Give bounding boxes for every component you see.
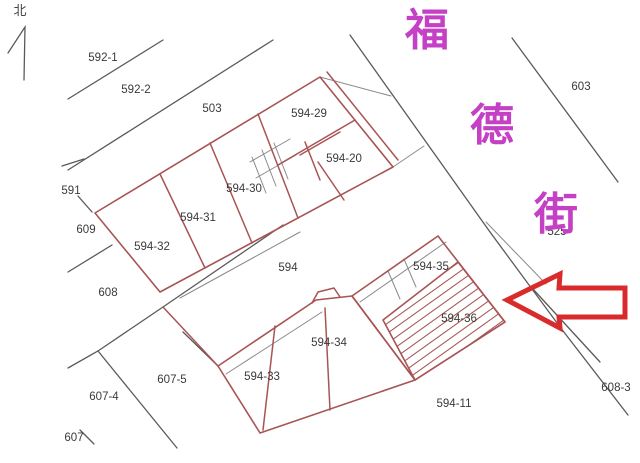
parcel-label-594-33: 594-33	[244, 371, 280, 383]
parcel-label-594-34: 594-34	[311, 337, 347, 349]
parcel-label-609: 609	[76, 224, 95, 236]
north-label: 北	[13, 3, 26, 18]
parcel-label-607-5: 607-5	[157, 374, 186, 386]
parcel-label-594-35: 594-35	[413, 261, 449, 273]
parcel-label-608-3: 608-3	[601, 382, 630, 394]
parcel-labels: 592-1 592-2 503 603 594-29 594-20 594-30…	[61, 52, 630, 444]
highlight-arrow-icon	[507, 274, 625, 328]
parcel-label-594-32: 594-32	[134, 241, 170, 253]
parcel-label-503: 503	[202, 103, 221, 115]
street-name-char-3: 街	[533, 189, 578, 240]
parcel-label-607-4: 607-4	[89, 391, 119, 403]
parcel-label-591: 591	[61, 185, 80, 197]
street-name-char-1: 福	[404, 5, 449, 56]
parcel-label-592-1: 592-1	[88, 52, 117, 64]
parcel-label-603: 603	[571, 81, 590, 93]
parcel-label-594-36: 594-36	[441, 313, 477, 325]
parcel-group-upper	[95, 72, 398, 292]
parcel-label-592-2: 592-2	[121, 84, 150, 96]
parcel-label-594: 594	[278, 262, 298, 274]
cadastral-map: 北 592-1 592-2 503 603 594-29 594-20 594-…	[0, 0, 640, 463]
parcel-label-594-30: 594-30	[226, 183, 262, 195]
parcel-label-594-11: 594-11	[437, 398, 472, 410]
parcel-group-lower-right	[352, 236, 505, 380]
north-arrow-icon: 北	[8, 3, 27, 80]
parcel-label-594-20: 594-20	[326, 153, 362, 165]
parcel-label-594-31: 594-31	[180, 212, 216, 224]
parcel-label-607: 607	[64, 432, 83, 444]
parcel-label-608: 608	[98, 287, 117, 299]
street-name-char-2: 德	[470, 100, 514, 151]
parcel-label-594-29: 594-29	[291, 108, 327, 120]
street-name: 福 德 街	[404, 5, 578, 240]
map-canvas: 北 592-1 592-2 503 603 594-29 594-20 594-…	[0, 0, 640, 463]
parcel-group-lower-left	[163, 288, 415, 433]
